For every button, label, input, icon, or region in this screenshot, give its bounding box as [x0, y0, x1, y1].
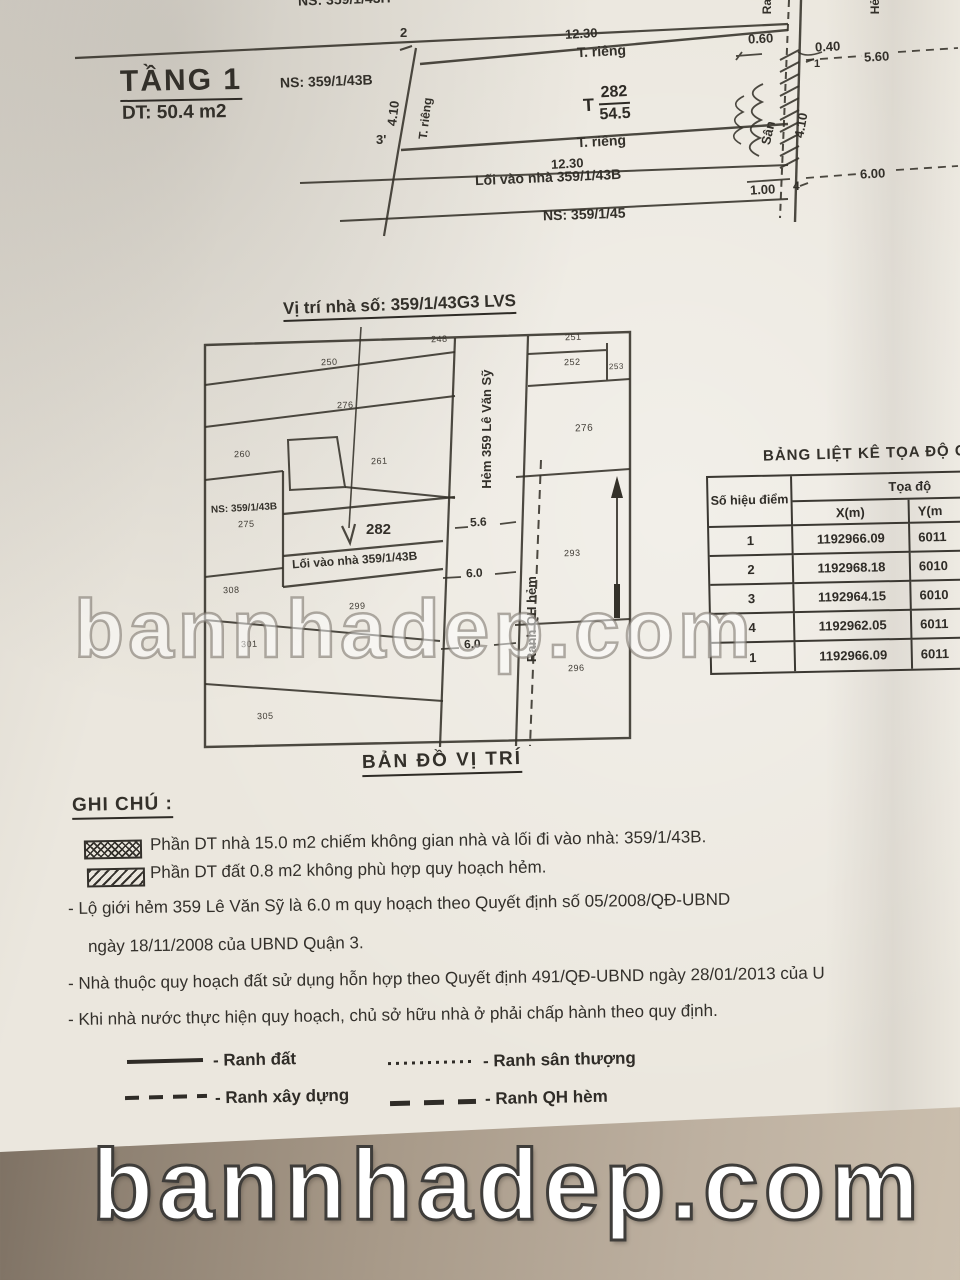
table-row-y: 6011	[912, 608, 960, 640]
table-row-y: 6010	[911, 550, 960, 582]
t-rieng-top: T. riêng	[577, 43, 627, 61]
point-4: 4	[793, 180, 800, 193]
col-header-coords: Tọa độ	[792, 471, 960, 502]
ns-left-label: NS: 359/1/43B	[280, 72, 373, 91]
map-ns43b-label: NS: 359/1/43B	[211, 501, 278, 515]
table-row-point: 1	[709, 526, 794, 557]
table-row-point: 2	[710, 555, 795, 586]
scanned-paper: TẦNG 1 DT: 50.4 m2 NS: 359/1/43H NS: 359…	[0, 0, 960, 1280]
hem-359-label: Hẻm 359 Lê Văn Sỹ	[480, 359, 494, 499]
point-1: 1	[814, 58, 820, 70]
leader-line	[349, 327, 361, 528]
table-row-y: 6011	[910, 521, 960, 553]
dim-6-00: 6.00	[860, 166, 886, 182]
t-rieng-left: T. riêng	[417, 77, 438, 140]
table-row-x: 1192966.09	[793, 524, 911, 555]
long-dash-line-sample	[390, 1099, 476, 1106]
dim-4-10-left: 4.10	[385, 79, 405, 126]
map-parcel-305: 305	[257, 712, 274, 722]
map-parcel-248: 248	[431, 335, 448, 345]
note-line-3: - Nhà thuộc quy hoạch đất sử dụng hỗn hợ…	[68, 964, 825, 993]
col-header-point: Số hiệu điểm	[708, 476, 793, 528]
map-parcel-251: 251	[565, 333, 582, 343]
san-label: Sân	[759, 108, 781, 146]
solid-line-sample	[127, 1058, 203, 1063]
map-parcel-261: 261	[371, 457, 388, 467]
floor-title: TẦNG 1	[120, 63, 243, 98]
col-header-x: X(m)	[793, 500, 910, 526]
legend-ranh-xay-dung: - Ranh xây dựng	[215, 1087, 350, 1108]
legend-ranh-dat: - Ranh đất	[213, 1050, 296, 1070]
legend-ranh-qh-hem: - Ranh QH hèm	[485, 1088, 608, 1109]
dim-5-60: 5.60	[864, 49, 890, 65]
map-parcel-275: 275	[238, 520, 255, 530]
map-lines	[205, 327, 630, 747]
parcel-282-area-fraction: T 282 54.5	[582, 83, 631, 126]
map-parcel-276-right: 276	[575, 423, 594, 435]
dim-1-00: 1.00	[750, 182, 776, 198]
crosshatch-swatch-icon	[84, 839, 142, 859]
map-dim-6-0-a: 6.0	[466, 567, 483, 581]
dim-0-40: 0.40	[815, 39, 841, 55]
point-2: 2	[400, 26, 407, 40]
col-header-y: Y(m	[910, 497, 960, 524]
loi-vao-label: Lối vào nhà 359/1/43B	[475, 167, 622, 189]
table-row-x: 1192968.18	[794, 553, 912, 584]
map-title: Vị trí nhà số: 359/1/43G3 LVS	[283, 292, 517, 319]
diagonal-hatch-swatch-icon	[87, 867, 145, 887]
map-caption: BẢN ĐỒ VỊ TRÍ	[362, 749, 523, 774]
ns-top-label: NS: 359/1/43H	[298, 0, 391, 9]
dashed-line-sample	[125, 1094, 207, 1100]
table-title: BẢNG LIỆT KÊ TỌA ĐỘ G	[763, 443, 960, 465]
map-parcel-276-left: 276	[337, 401, 354, 411]
map-dim-5-6: 5.6	[470, 516, 487, 530]
note-hatch1: Phần DT nhà 15.0 m2 chiếm không gian nhà…	[150, 828, 707, 854]
ranh-cut-label: Ra	[761, 0, 774, 14]
dim-4-10-right: 4.10	[792, 95, 813, 139]
note-hatch2: Phần DT đất 0.8 m2 không phù hợp quy hoạ…	[150, 858, 547, 882]
watermark-middle: bannhadep.com	[74, 583, 755, 677]
arrow-v-icon	[342, 524, 355, 543]
point-3: 3'	[376, 133, 386, 147]
hem-cut-label: Hẻ	[869, 0, 882, 14]
legend-ranh-san-thuong: - Ranh sân thượng	[483, 1049, 636, 1071]
san-scallop-icon	[750, 84, 763, 156]
table-row-y: 6011	[912, 637, 960, 669]
map-parcel-253: 253	[609, 363, 624, 372]
map-parcel-282: 282	[366, 522, 391, 539]
san-scallop-icon	[734, 96, 744, 144]
floor-area: DT: 50.4 m2	[122, 102, 227, 125]
table-row-x: 1192962.05	[795, 611, 913, 642]
map-loi-vao-label: Lối vào nhà 359/1/43B	[292, 550, 418, 572]
notes-heading: GHI CHÚ :	[72, 794, 173, 817]
dim-0-60: 0.60	[748, 31, 774, 47]
dim-12-30-top: 12.30	[565, 26, 598, 42]
note-line-1: - Lộ giới hẻm 359 Lê Văn Sỹ là 6.0 m quy…	[68, 891, 730, 919]
map-parcel-293: 293	[564, 549, 581, 559]
note-line-2: ngày 18/11/2008 của UBND Quận 3.	[88, 934, 364, 957]
ns-bottom-label: NS: 359/1/45	[543, 206, 626, 224]
table-row-x: 1192966.09	[795, 640, 913, 671]
map-parcel-252: 252	[564, 358, 581, 368]
dotted-line-sample	[388, 1060, 474, 1065]
note-line-4: - Khi nhà nước thực hiện quy hoạch, chủ …	[68, 1002, 718, 1030]
t-rieng-bottom: T. riêng	[577, 133, 627, 151]
table-row-y: 6010	[911, 579, 960, 611]
map-parcel-260: 260	[234, 450, 251, 460]
photo-of-document: { "floorplan": { "title": "TẦNG 1", "are…	[0, 0, 960, 1280]
table-row-x: 1192964.15	[794, 582, 912, 613]
map-parcel-250: 250	[321, 358, 338, 368]
watermark-bottom: bannhadep.com	[92, 1128, 924, 1243]
